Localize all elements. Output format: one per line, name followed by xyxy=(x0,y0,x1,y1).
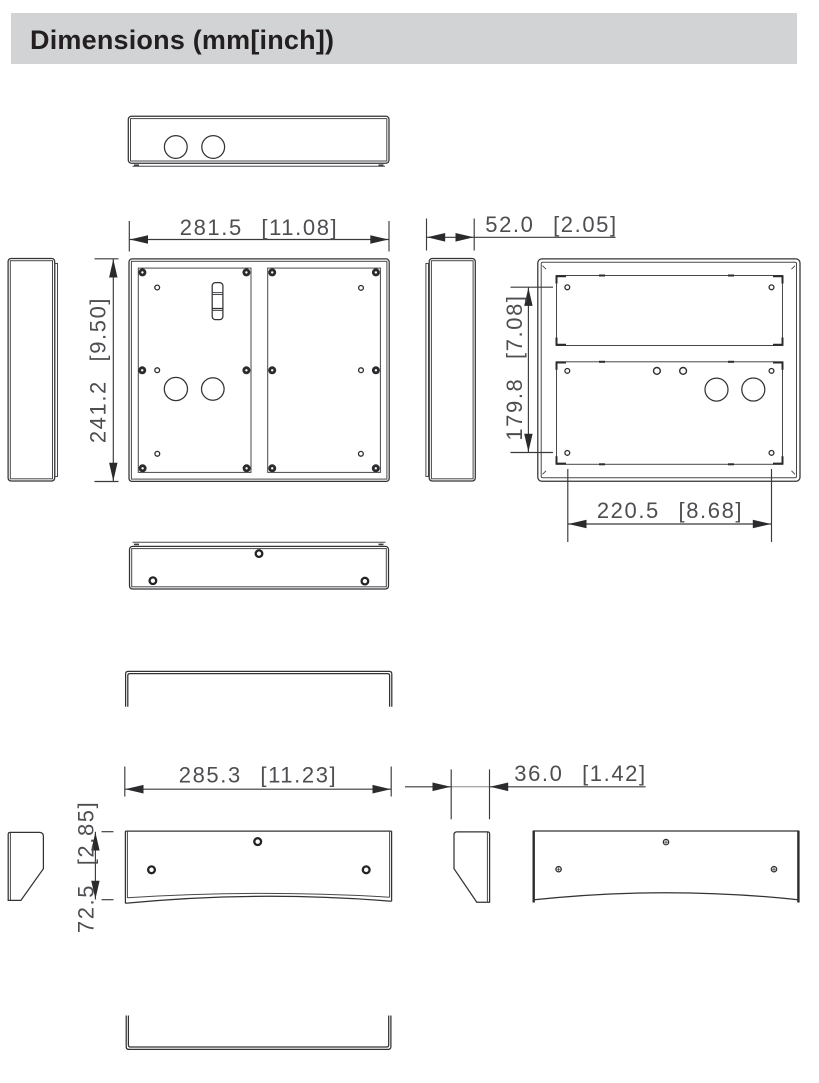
svg-text:241.2 [9.50]: 241.2 [9.50] xyxy=(86,297,111,443)
svg-text:52.0 [2.05]: 52.0 [2.05] xyxy=(485,212,617,237)
svg-text:179.8 [7.08]: 179.8 [7.08] xyxy=(502,294,527,440)
svg-text:285.3 [11.23]: 285.3 [11.23] xyxy=(179,763,338,788)
svg-text:36.0 [1.42]: 36.0 [1.42] xyxy=(514,761,646,786)
svg-text:72.5 [2.85]: 72.5 [2.85] xyxy=(74,801,99,933)
svg-text:281.5 [11.08]: 281.5 [11.08] xyxy=(180,215,339,240)
svg-text:Dimensions (mm[inch]): Dimensions (mm[inch]) xyxy=(30,25,334,55)
svg-text:220.5 [8.68]: 220.5 [8.68] xyxy=(597,498,743,523)
